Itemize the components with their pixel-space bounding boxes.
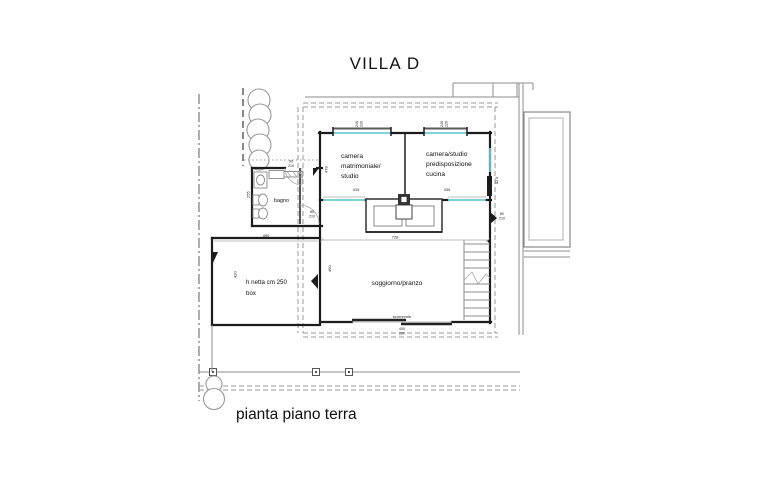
- sliding-door: [352, 320, 452, 324]
- wall-pillar: [487, 176, 492, 196]
- dim-entry-door-h: 210: [288, 164, 294, 168]
- staircase: [464, 240, 490, 320]
- garage-label-2: box: [246, 290, 257, 297]
- bedroom2-label-2: predisposizione: [426, 161, 472, 168]
- bedroom2-label-1: camera/studio: [426, 151, 468, 158]
- washbasin: [269, 171, 284, 179]
- ramp-hatch: [287, 172, 291, 178]
- bush-symbol: [204, 376, 225, 410]
- bedroom1-label-3: studio: [341, 173, 359, 180]
- stair-break-line: [464, 272, 490, 284]
- stair-corner-mark: [486, 240, 490, 244]
- bidet: [259, 208, 268, 219]
- fence-post-dot: [315, 371, 317, 373]
- dim-right-door-h: 210: [499, 217, 505, 221]
- right-side-door: [490, 212, 497, 224]
- garage-label-1: h netta cm 250: [246, 279, 287, 286]
- door-leaf-mark: [490, 212, 497, 224]
- floor-plan: VILLA D pianta piano terra camera matrim…: [0, 0, 764, 492]
- fence-post-dot: [348, 371, 350, 373]
- bathroom-label: bagno: [274, 198, 289, 204]
- garage-door-mark-right: [311, 274, 318, 289]
- dim-garage-depth: 420: [233, 271, 238, 278]
- garage-door-mark-left: [212, 252, 218, 265]
- bedroom2-label-3: cucina: [426, 171, 445, 178]
- bedroom1-label-1: camera: [341, 153, 363, 160]
- dim-entry-door-w: 90: [289, 160, 293, 164]
- entry-door-leaf: [313, 168, 319, 176]
- dim-sliding-w: 400: [399, 327, 405, 331]
- dim-living-depth: 460: [327, 265, 332, 272]
- dim-bedroom2-width: 435: [444, 187, 451, 192]
- terrace: [524, 112, 570, 257]
- fireplace-block: [366, 194, 442, 232]
- terrace-inner: [529, 118, 563, 240]
- plan-caption: pianta piano terra: [236, 406, 357, 423]
- dim-right-side: 82.5: [495, 177, 499, 184]
- entry-canopy: [453, 83, 533, 335]
- dim-bath-door-h: 210: [309, 215, 315, 219]
- dim-window-right-w: 240: [440, 121, 444, 127]
- dim-living-width: 728: [392, 235, 399, 240]
- dim-bath-side: 255: [246, 191, 251, 198]
- living-label: soggiorno/pranzo: [372, 280, 423, 287]
- toilet: [259, 194, 268, 206]
- plan-title: VILLA D: [350, 54, 421, 73]
- garage-box: [212, 238, 320, 372]
- bedroom1-label-2: matrimoniale/: [341, 163, 381, 170]
- dim-right-door-w: 80: [500, 212, 504, 216]
- bush-bottom: [204, 389, 225, 410]
- dim-window-right-h: 220: [445, 121, 449, 127]
- ramp-hatch: [293, 172, 297, 178]
- hedge: [243, 88, 318, 170]
- sliding-door-label: scorrevole: [393, 314, 412, 319]
- dim-window-left-h: 220: [360, 121, 364, 127]
- dim-bedroom1-width: 415: [353, 187, 360, 192]
- site-boundary: [199, 94, 520, 401]
- dim-bedroom1-depth: 478: [324, 166, 329, 173]
- dim-bath-door-w: 80: [310, 210, 314, 214]
- dim-sliding-h: 220: [399, 332, 405, 336]
- dim-garage-width: 490: [263, 233, 270, 238]
- dim-window-left-w: 240: [355, 121, 359, 127]
